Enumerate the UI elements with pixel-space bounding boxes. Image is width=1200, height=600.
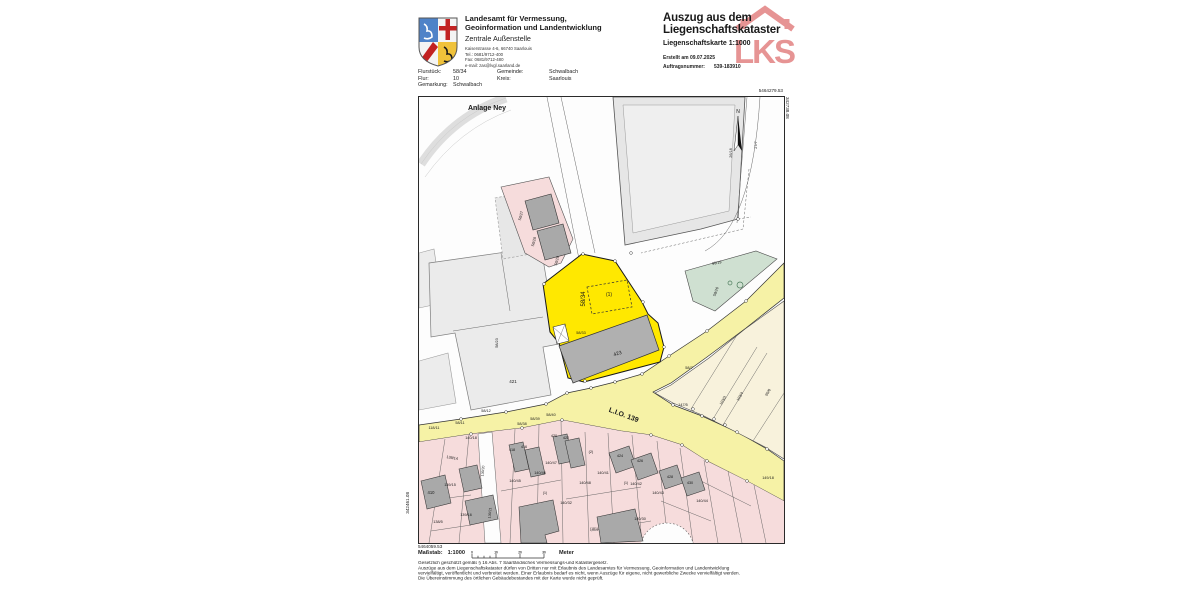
map-label-181: (181) [590,527,598,531]
field-value: Schwalbach [453,82,497,89]
survey-point [706,330,709,333]
map-label-N: N [736,109,740,115]
survey-point [706,460,709,463]
map-label-422: 422 [563,436,569,440]
map-label-428: 428 [667,475,673,479]
grid-coordinate-top-right: 5464279.53 [695,88,783,93]
survey-point [692,408,695,411]
map-label-5833: 58/33 [576,331,586,335]
grid-coordinate-bottom-left: 5464059.53 [418,544,442,549]
field-value [549,82,619,89]
map-label-14043: 140/43 [652,491,664,495]
survey-point [543,283,546,286]
survey-point [614,381,617,384]
map-label-5812: 58/12 [481,409,491,413]
document-title-line2: Liegenschaftskataster [663,24,780,36]
page: Landesamt für Vermessung, Geoinformation… [0,0,1200,600]
survey-point [641,373,644,376]
map-label-14044: 140/44 [696,499,708,503]
map-label-14041: 140/41 [597,471,609,475]
order-number-label: Auftragsnummer: [663,64,705,70]
document-title-line1: Auszug aus dem [663,12,780,24]
legal-text: Gesetzlich geschützt gemäß § 16 Abs. 7 S… [418,561,740,582]
map-label-1: (1) [543,491,547,495]
agency-name-line2: Geoinformation und Landentwicklung [465,24,602,33]
survey-point [470,433,473,436]
map-label-424: 424 [617,454,623,458]
map-label-14048: 140/48 [579,481,591,485]
cadastral-map: Anlage NeyN26/1827/796/1958/2658/2758/28… [418,96,785,544]
map-label-1: (1) [624,481,628,485]
map-label-1475: 147/5 [678,403,688,407]
field-label: Flurstück: [418,69,453,76]
field-label [497,82,549,89]
field-value: Saarlouis [549,76,619,83]
grid-coordinate-right: 342738.08 [785,97,790,119]
survey-point [737,218,740,221]
map-label-14032: 140/32 [560,501,572,505]
field-value: Schwalbach [549,69,619,76]
survey-point [724,424,727,427]
field-value: 58/34 [453,69,497,76]
map-label-AnlageNey: Anlage Ney [468,105,506,112]
scale-row: Maßstab: 1:1000 0102030 Meter [418,550,574,561]
scale-bar-numbers: 0102030 [471,550,546,554]
survey-point [642,301,645,304]
order-number-row: Auftragsnummer:539-183910 [663,63,780,72]
map-label-418: 418 [509,448,515,452]
legal-line: Die Übereinstimmung des örtlichen Gebäud… [418,576,740,581]
fields-grid: Flurstück:58/34Gemeinde:SchwalbachFlur:1… [418,69,619,89]
agency-block: Landesamt für Vermessung, Geoinformation… [465,15,602,68]
map-label-14018: 140/18 [465,436,477,440]
map-label-1: (1) [606,292,612,298]
survey-point [630,252,633,255]
survey-point [584,380,587,383]
map-label-5839: 58/39 [530,417,540,421]
map-label-5823: 58/23 [495,338,499,348]
cadastral-map-svg: Anlage NeyN26/1827/796/1958/2658/2758/28… [419,97,784,543]
survey-point [701,415,704,418]
survey-point [460,418,463,421]
map-label-420: 420 [551,434,557,438]
map-label-5840: 58/40 [546,413,556,417]
survey-point [614,260,617,263]
map-label-277: 27/7 [754,141,758,148]
survey-point [590,387,593,390]
agency-office: Zentrale Außenstelle [465,35,602,43]
map-label-430: 430 [687,481,693,485]
agency-email: e-mail: zas@lvgl.saarland.de [465,63,602,69]
scale-tick-number: 30 [542,550,546,554]
field-label: Gemarkung: [418,82,453,89]
map-label-416: 416 [521,445,527,449]
map-label-14047: 140/47 [545,461,557,465]
map-label-5838: 58/38 [517,422,527,426]
document-subtitle: Liegenschaftskarte 1:1000 [663,40,780,47]
survey-point [672,404,675,407]
field-label: Gemeinde: [497,69,549,76]
survey-point [766,448,769,451]
map-label-14918: 149/18 [762,476,774,480]
survey-point [736,431,739,434]
scale-value: 1:1000 [448,550,465,556]
map-label-14042: 140/42 [630,482,642,486]
survey-point [668,355,671,358]
map-label-13916: 139/16 [460,513,472,517]
survey-point [505,411,508,414]
map-label-5811: 58/11 [455,421,464,425]
survey-point [746,480,749,483]
saarland-coat-of-arms-icon [418,17,458,72]
map-label-14045: 140/45 [509,479,521,483]
map-label-421: 421 [509,379,517,384]
scale-tick-number: 0 [471,550,473,554]
map-label-2: (2) [589,450,594,454]
field-label: Kreis: [497,76,549,83]
grid-coordinate-left: 342461.08 [405,492,410,514]
map-label-14046: 140/46 [534,471,546,475]
field-label: Flur: [418,76,453,83]
scale-tick-number: 10 [494,550,498,554]
survey-point [745,300,748,303]
survey-point [566,392,569,395]
map-label-13915: 139/15 [444,483,456,487]
scale-label: Maßstab: [418,550,443,556]
map-label-11811: 118/11 [428,426,439,430]
survey-point [650,434,653,437]
title-block: Auszug aus dem Liegenschaftskataster Lie… [663,12,780,72]
survey-point [545,403,548,406]
cadastral-extract-document: Landesamt für Vermessung, Geoinformation… [395,0,805,600]
map-label-2618: 26/18 [729,148,733,158]
map-label-5834: 58/34 [581,291,587,307]
map-label-14030: 140/30 [634,517,646,521]
survey-point [582,253,585,256]
survey-point [713,418,716,421]
survey-point [521,427,524,430]
map-label-1385: 138/5 [433,520,443,524]
survey-point [561,419,564,422]
scale-unit: Meter [559,550,574,556]
created-date: Erstellt am 09.07.2025 [663,54,780,63]
map-label-426: 426 [637,459,643,463]
survey-point [681,444,684,447]
survey-point [663,346,666,349]
map-label-410: 410 [428,490,436,495]
scale-tick-number: 20 [518,550,522,554]
order-number-value: 539-183910 [714,64,741,70]
scale-bar: 0102030 [470,550,548,561]
field-value: 10 [453,76,497,83]
map-label-587: 58/7 [685,366,692,370]
